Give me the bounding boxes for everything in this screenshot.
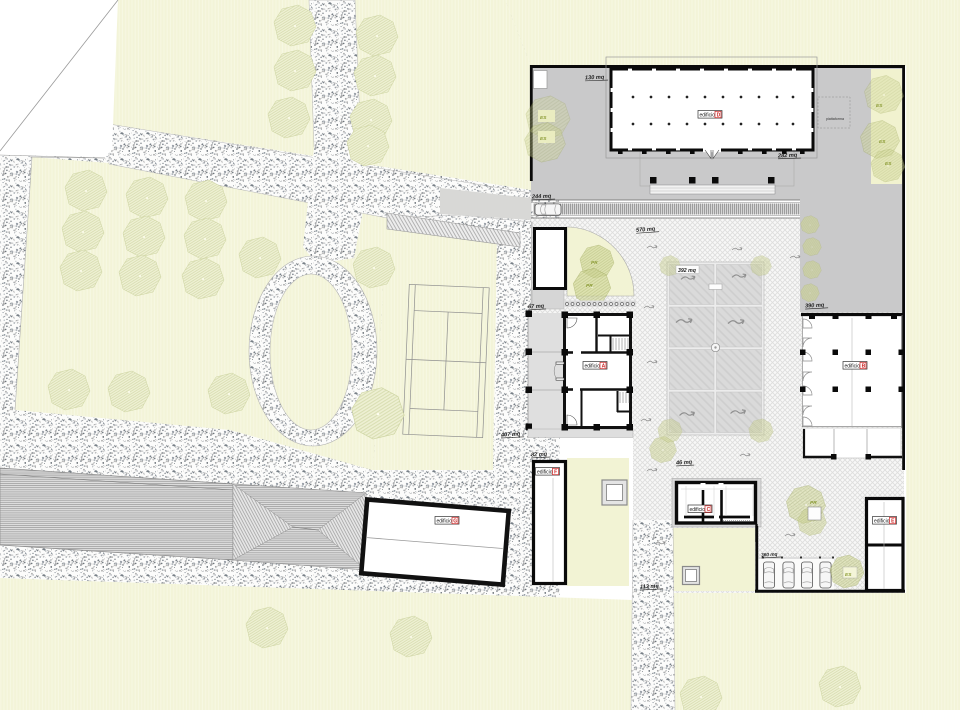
svg-text:ES: ES [876,103,883,109]
svg-text:ES: ES [885,161,892,167]
svg-text:F: F [554,469,557,475]
svg-text:edificio: edificio [585,363,601,369]
svg-text:edificio: edificio [845,363,861,369]
svg-text:ES: ES [879,139,886,145]
svg-text:PR: PR [591,260,598,266]
svg-text:edificio: edificio [690,507,706,513]
svg-text:ES: ES [845,572,852,578]
svg-text:B: B [862,363,866,369]
svg-text:ES: ES [540,136,547,142]
svg-text:G: G [453,518,457,524]
svg-text:edificio: edificio [700,112,716,118]
svg-text:edificio: edificio [437,518,453,524]
svg-text:C: C [707,507,711,513]
svg-text:392 mq: 392 mq [678,268,697,274]
svg-text:A: A [602,363,606,369]
svg-text:D: D [717,112,721,118]
svg-text:piattaforma: piattaforma [826,117,844,121]
svg-text:ES: ES [540,115,547,121]
svg-text:edificio: edificio [874,518,890,524]
svg-text:edificio: edificio [537,469,553,475]
svg-text:PR: PR [810,500,817,506]
svg-text:PR: PR [586,283,593,289]
